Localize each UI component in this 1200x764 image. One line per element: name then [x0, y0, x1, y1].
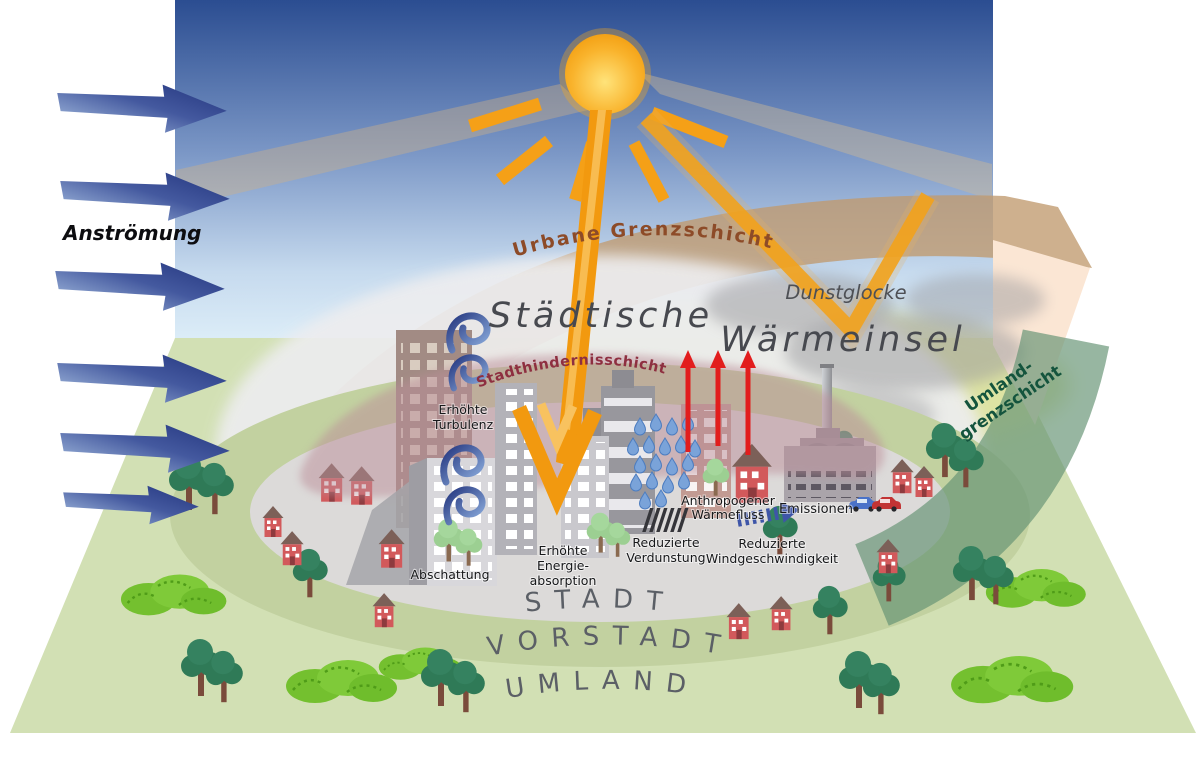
urban-heat-island-diagram: Anströmung Urbane Grenzschicht Stadthind…	[0, 0, 1200, 764]
inflow-label: Anströmung	[61, 221, 201, 245]
page-title-line2: Wärmeinsel	[720, 320, 966, 360]
waermefluss-label: Anthropogener	[681, 493, 776, 508]
sun-icon	[559, 28, 651, 120]
emissionen-label: Emissionen	[779, 502, 853, 517]
turbulenz-label: Erhöhte	[439, 402, 488, 417]
svg-text:Turbulenz: Turbulenz	[432, 417, 494, 432]
svg-text:Windgeschwindigkeit: Windgeschwindigkeit	[706, 551, 838, 566]
windgeschwindigkeit-label: Reduzierte	[738, 536, 805, 551]
page-title-line1: Städtische	[489, 296, 713, 336]
dunstglocke-label: Dunstglocke	[785, 281, 906, 304]
zone-stadt: STADT	[523, 584, 676, 618]
abschattung-label: Abschattung	[410, 567, 489, 582]
svg-text:Verdunstung: Verdunstung	[626, 550, 705, 565]
verdunstung-label: Reduzierte	[632, 535, 699, 550]
svg-text:Energie-: Energie-	[537, 558, 589, 573]
svg-text:Wärmefluss: Wärmefluss	[692, 507, 765, 522]
energieabsorption-label: Erhöhte	[539, 543, 588, 558]
diagram-canvas: Anströmung Urbane Grenzschicht Stadthind…	[0, 0, 1200, 764]
